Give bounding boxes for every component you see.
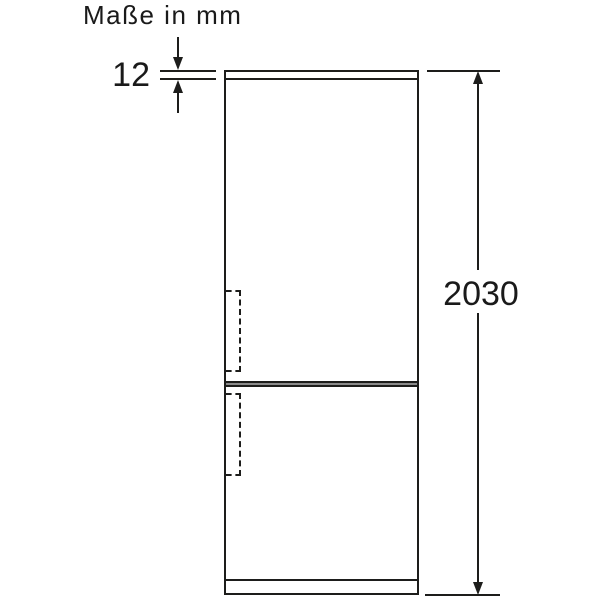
lower-door-dashed-outline bbox=[226, 393, 241, 476]
extension-line-2030-bottom bbox=[425, 594, 500, 596]
arrow-up-icon bbox=[173, 80, 183, 93]
extension-line-12-top bbox=[160, 70, 216, 72]
dimension-line-12-lower bbox=[177, 92, 179, 113]
fridge-outline bbox=[224, 70, 419, 595]
arrow-down-icon bbox=[173, 57, 183, 70]
extension-line-12-bottom bbox=[160, 78, 216, 80]
arrow-down-icon bbox=[473, 582, 483, 595]
top-panel-line bbox=[226, 78, 417, 80]
upper-door-dashed-outline bbox=[226, 290, 241, 372]
diagram-title: Maße in mm bbox=[83, 1, 242, 29]
dimension-line-2030-lower bbox=[477, 313, 479, 583]
dimension-value-total-height: 2030 bbox=[421, 277, 541, 311]
dimension-diagram: Maße in mm 12 2030 bbox=[0, 0, 600, 600]
compartment-divider-bottom-line bbox=[226, 385, 417, 387]
dimension-line-2030-upper bbox=[477, 82, 479, 270]
plinth-line bbox=[226, 579, 417, 581]
dimension-value-top-thickness: 12 bbox=[96, 58, 150, 92]
extension-line-2030-top bbox=[427, 70, 500, 72]
